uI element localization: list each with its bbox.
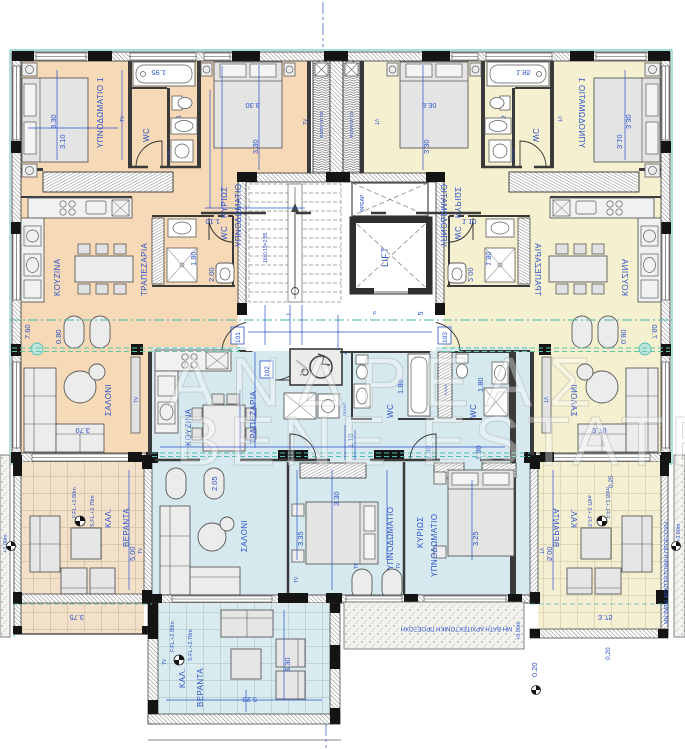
svg-text:0,20: 0,20 (605, 647, 612, 660)
svg-text:ΦΩΤΑΓΩΓΟΣ: ΦΩΤΑΓΩΓΟΣ (349, 111, 354, 138)
svg-text:S.FL.+2.70m: S.FL.+2.70m (188, 629, 194, 661)
svg-text:TV: TV (120, 115, 126, 122)
svg-text:ΜΗ ΒΑΤΗ ΑΡΧΙΤΕΚΤΟΝΙΚΗ ΠΡΟΕΞΟΧΗ: ΜΗ ΒΑΤΗ ΑΡΧΙΤΕΚΤΟΝΙΚΗ ΠΡΟΕΞΟΧΗ (401, 625, 512, 631)
svg-text:ΠΛΥΝΤ.: ΠΛΥΝΤ. (166, 147, 171, 161)
svg-text:103: 103 (442, 332, 449, 343)
svg-text:ΥΠΝΟΔΩΜΑΤΙΟ: ΥΠΝΟΔΩΜΑΤΙΟ (234, 184, 243, 247)
svg-text:1.80: 1.80 (189, 251, 198, 266)
svg-text:ΚΑΛ.: ΚΑΛ. (178, 668, 187, 688)
svg-text:ΦΡΕΑΡ: ΦΡΕΑΡ (360, 194, 366, 212)
svg-text:5.20: 5.20 (242, 695, 257, 704)
svg-text:3.75: 3.75 (69, 613, 84, 622)
svg-text:ΚΑΛ.: ΚΑΛ. (104, 508, 113, 528)
svg-text:ΚΥΡΙΩΣ: ΚΥΡΙΩΣ (220, 186, 229, 218)
svg-text:5.00: 5.00 (128, 546, 137, 561)
svg-text:1.10: 1.10 (205, 217, 220, 226)
svg-text:S.FL.+2.70m: S.FL.+2.70m (90, 495, 96, 527)
svg-text:3.30: 3.30 (332, 491, 341, 506)
svg-text:LIFT: LIFT (380, 247, 390, 267)
svg-text:ΥΠΝΟΔΩΜΑΤΙΟ: ΥΠΝΟΔΩΜΑΤΙΟ (430, 514, 439, 577)
svg-text:ΒΕΡΑΝΤΑ: ΒΕΡΑΝΤΑ (122, 508, 131, 547)
svg-text:3.30: 3.30 (251, 139, 260, 154)
svg-text:ΣΑΛΟΝΙ: ΣΑΛΟΝΙ (104, 384, 113, 416)
svg-text:TV: TV (396, 562, 402, 569)
svg-text:101: 101 (235, 332, 242, 343)
svg-text:16x0.19=2.85: 16x0.19=2.85 (263, 232, 269, 263)
svg-text:TV: TV (303, 118, 309, 125)
svg-text:TV: TV (138, 547, 144, 554)
svg-text:3.70: 3.70 (75, 426, 90, 435)
svg-text:3.30: 3.30 (49, 114, 58, 129)
svg-text:1.95: 1.95 (151, 68, 166, 77)
svg-text:0.80: 0.80 (54, 329, 63, 344)
svg-text:TV: TV (134, 396, 140, 403)
svg-text:ΜΗ ΒΑΤΗ ΑΡΧΙΤΕΚΤΟΝΙΚΗ ΠΡΟΕΞΟΧΗ: ΜΗ ΒΑΤΗ ΑΡΧΙΤΕΚΤΟΝΙΚΗ ΠΡΟΕΞΟΧΗ (664, 522, 670, 624)
svg-text:TV: TV (354, 562, 360, 569)
svg-text:TV: TV (294, 576, 300, 583)
svg-text:F.FL.+2.80m: F.FL.+2.80m (72, 487, 78, 518)
svg-text:ΦΩΤΑΓΩΓΟΣ: ΦΩΤΑΓΩΓΟΣ (319, 111, 324, 138)
svg-text:TV: TV (162, 658, 168, 665)
svg-text:WC: WC (220, 226, 229, 240)
svg-text:0.20: 0.20 (530, 662, 539, 677)
svg-text:ΤΡΑΠΕΖΑΡΙΑ: ΤΡΑΠΕΖΑΡΙΑ (140, 243, 149, 296)
svg-text:ΒΕΝΕ ΕSΤΑΤΕ: ΒΕΝΕ ΕSΤΑΤΕ (175, 402, 685, 480)
svg-text:ΥΠΝΟΔΩΜΑΤΙΟ 1: ΥΠΝΟΔΩΜΑΤΙΟ 1 (96, 77, 105, 148)
svg-text:ΚΟΥΖΙΝΑ: ΚΟΥΖΙΝΑ (53, 258, 62, 296)
svg-text:ΒΕΡΑΝΤΑ: ΒΕΡΑΝΤΑ (196, 668, 205, 707)
svg-text:WC: WC (142, 128, 151, 142)
svg-text:3.30: 3.30 (245, 101, 260, 110)
svg-text:F.FL.+2.80m: F.FL.+2.80m (170, 621, 176, 652)
svg-text:2.00: 2.00 (207, 267, 216, 282)
svg-text:+3.00m: +3.00m (516, 621, 522, 640)
svg-text:7.60: 7.60 (23, 324, 32, 339)
svg-text:+3.00m: +3.00m (676, 523, 682, 542)
svg-text:3.10: 3.10 (58, 134, 67, 149)
svg-text:ΚΥΡΙΩΣ: ΚΥΡΙΩΣ (416, 516, 425, 548)
svg-text:ΣΑΛΟΝΙ: ΣΑΛΟΝΙ (240, 520, 249, 552)
